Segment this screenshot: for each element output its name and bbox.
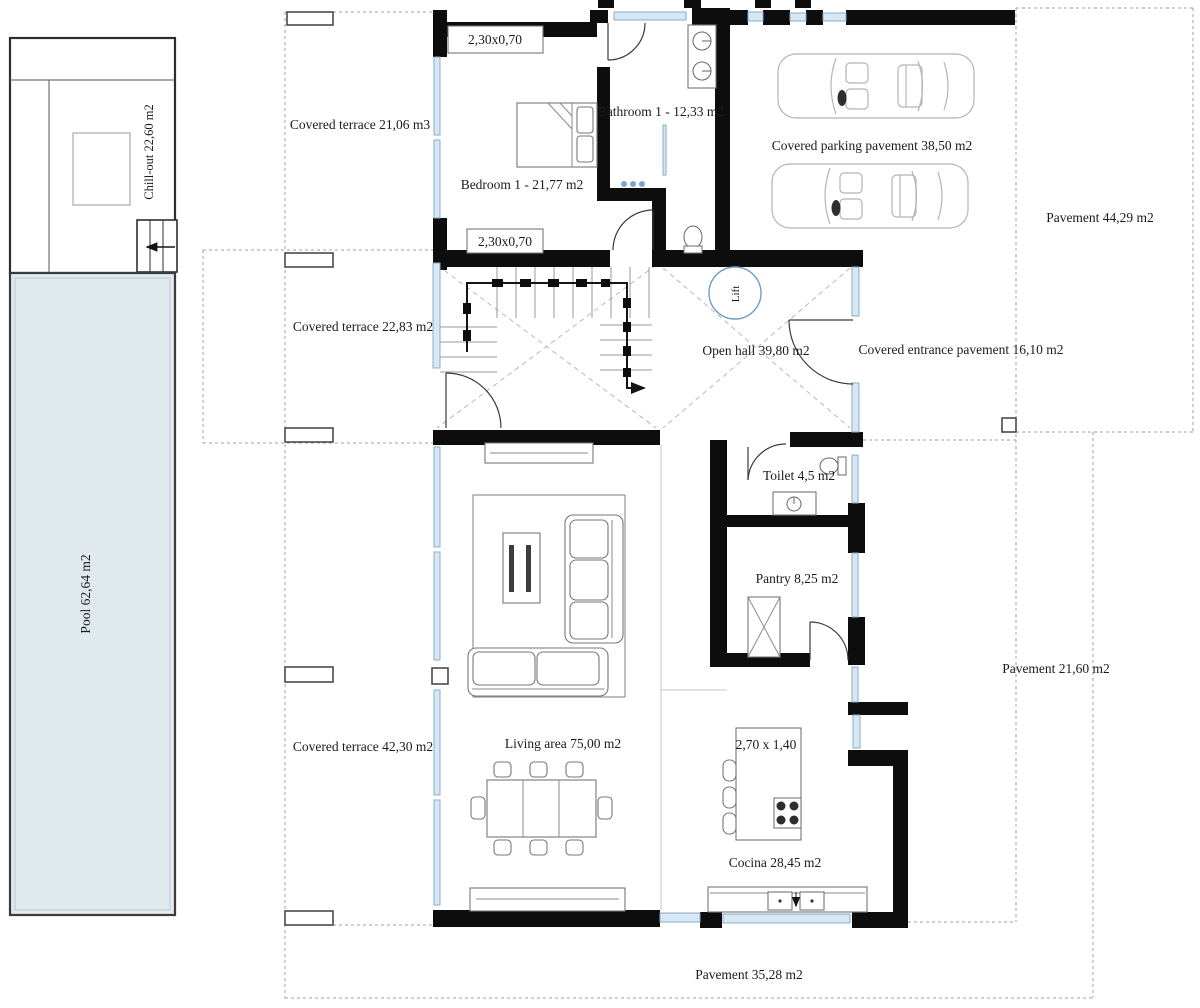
lift-label: Lift	[730, 286, 742, 303]
car	[772, 164, 968, 228]
toilet-bowl	[684, 226, 702, 248]
lift: Lift	[709, 267, 761, 319]
toilet-room-fixtures	[773, 457, 846, 515]
shower-screen	[663, 125, 666, 175]
car	[778, 54, 974, 118]
pavement-s-label: Pavement 35,28 m2	[695, 967, 803, 982]
sofa	[468, 515, 623, 696]
toilet-label: Toilet 4,5 m2	[763, 468, 835, 483]
chill-out-steps	[137, 220, 177, 272]
covered-terrace-bottom-label: Covered terrace 42,30 m2	[293, 739, 433, 754]
coffee-table	[503, 533, 540, 603]
kitchen	[708, 728, 867, 912]
chill-out-table	[73, 133, 130, 205]
entrance-label: Covered entrance pavement 16,10 m2	[858, 342, 1063, 357]
cocina-label: Cocina 28,45 m2	[729, 855, 822, 870]
toilet-tank	[838, 457, 846, 475]
dining-set	[471, 762, 612, 855]
pool: Pool 62,64 m2	[10, 273, 175, 915]
floor-plan-drawing: Chill-out 22,60 m2 Pool 62,64 m2	[0, 0, 1200, 1008]
open-hall-label: Open hall 39,80 m2	[702, 343, 809, 358]
plot-boundary	[203, 8, 1193, 998]
chill-out-label: Chill-out 22,60 m2	[142, 104, 156, 200]
pool-label: Pool 62,64 m2	[78, 554, 93, 633]
living-label: Living area 75,00 m2	[505, 736, 621, 751]
rail-ticks	[463, 279, 631, 377]
bedroom1-label: Bedroom 1 - 21,77 m2	[461, 177, 584, 192]
covered-terrace-top-label: Covered terrace 21,06 m3	[290, 117, 430, 132]
chill-out-area: Chill-out 22,60 m2	[10, 38, 177, 273]
dining-table	[487, 780, 596, 837]
window-dim-bottom-label: 2,30x0,70	[478, 234, 532, 249]
floor-plan: Chill-out 22,60 m2 Pool 62,64 m2	[0, 0, 1200, 1008]
parking-label: Covered parking pavement 38,50 m2	[772, 138, 973, 153]
pantry-shelving	[748, 597, 780, 657]
staircase	[440, 267, 652, 428]
covered-terrace-mid-label: Covered terrace 22,83 m2	[293, 319, 433, 334]
stool	[723, 760, 736, 781]
stool	[723, 787, 736, 808]
bathroom-fixtures	[621, 25, 716, 253]
washbasin-unit	[688, 25, 716, 88]
island-dim-label: 2,70 x 1,40	[736, 737, 797, 752]
toilet-tank	[684, 246, 702, 253]
pavement-e-label: Pavement 21,60 m2	[1002, 661, 1110, 676]
bathroom1-label: Bathroom 1 - 12,33 m2	[598, 104, 724, 119]
stool	[723, 813, 736, 834]
window-dim-top-label: 2,30x0,70	[468, 32, 522, 47]
hob	[774, 798, 801, 828]
living-furniture	[468, 443, 625, 911]
pantry-label: Pantry 8,25 m2	[756, 571, 839, 586]
bed	[517, 103, 597, 167]
pavement-ne-label: Pavement 44,29 m2	[1046, 210, 1154, 225]
